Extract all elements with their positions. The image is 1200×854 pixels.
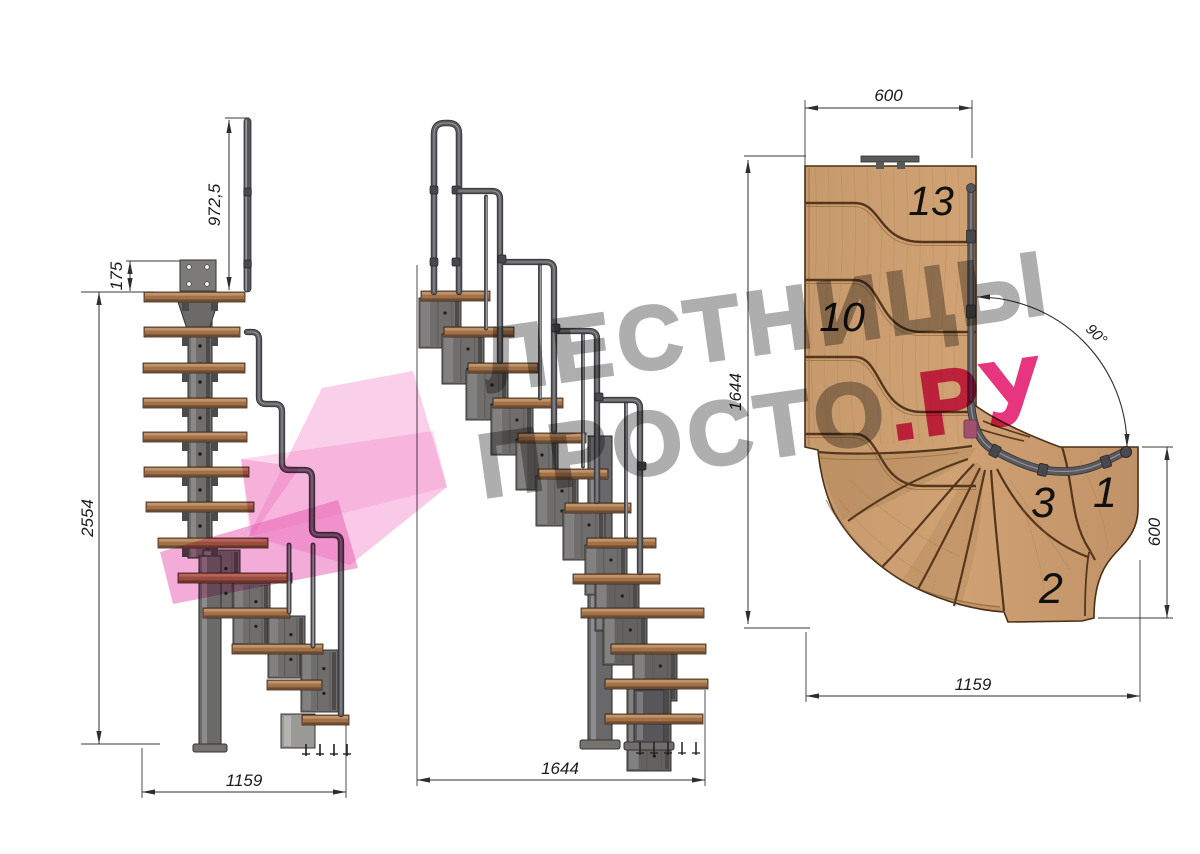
- svg-text:600: 600: [1145, 517, 1164, 546]
- svg-text:175: 175: [107, 261, 126, 290]
- svg-text:1159: 1159: [226, 771, 263, 790]
- svg-text:3: 3: [1031, 479, 1055, 527]
- svg-text:1644: 1644: [541, 759, 579, 778]
- svg-text:1: 1: [1093, 469, 1117, 517]
- svg-text:600: 600: [874, 86, 903, 105]
- svg-text:972,5: 972,5: [205, 183, 224, 226]
- svg-text:2554: 2554: [78, 499, 97, 538]
- svg-text:1159: 1159: [955, 675, 992, 694]
- svg-text:2: 2: [1038, 565, 1063, 613]
- svg-text:13: 13: [908, 178, 954, 224]
